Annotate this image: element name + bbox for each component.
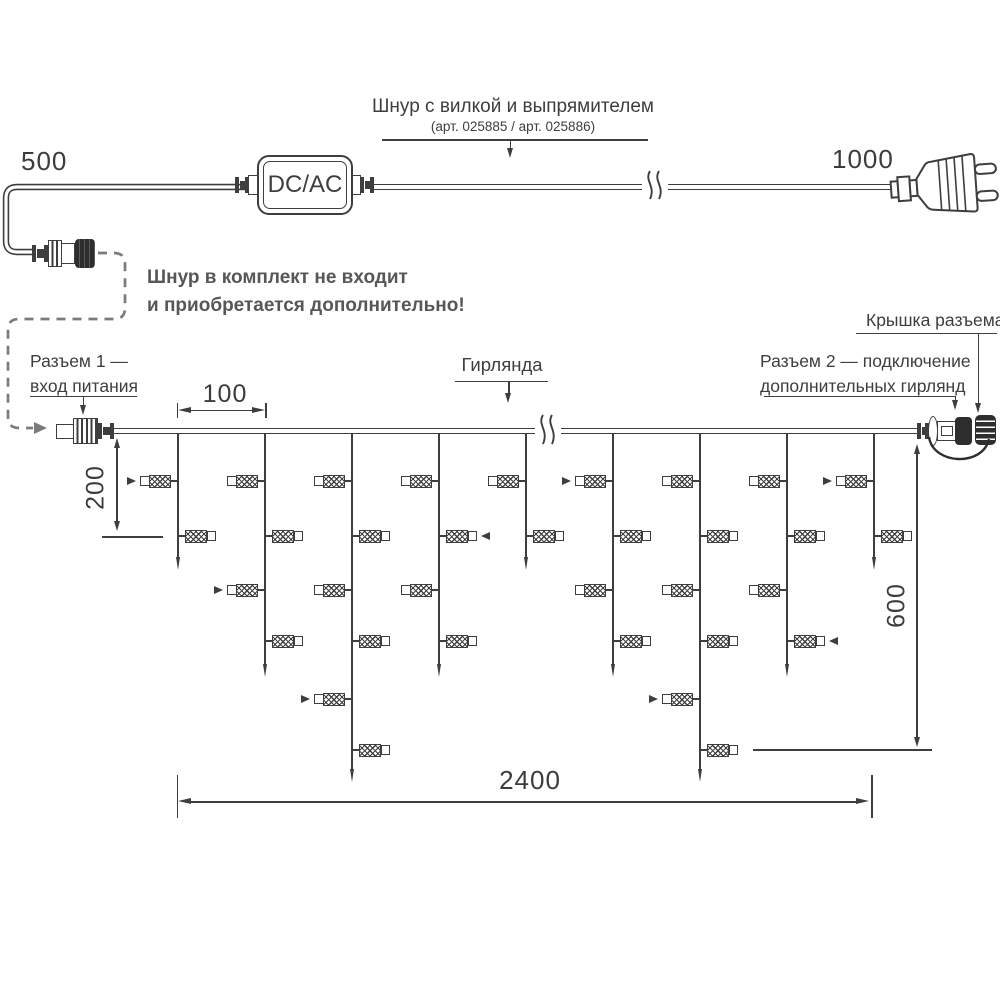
light-stub (432, 589, 439, 591)
led-light-icon (671, 693, 693, 706)
drop-wire (351, 433, 353, 769)
light-pointer-arrow-icon (127, 477, 136, 485)
light-pointer-arrow-icon (562, 477, 571, 485)
light-pointer-arrow-icon (214, 586, 223, 594)
led-light-icon (497, 475, 519, 488)
led-light-icon (149, 475, 171, 488)
light-stub (352, 749, 359, 751)
led-light-cap (401, 476, 411, 486)
light-stub (700, 640, 707, 642)
light-pointer-arrow-icon (823, 477, 832, 485)
led-light-cap (488, 476, 498, 486)
drop-tip-icon (872, 557, 876, 570)
light-stub (780, 589, 787, 591)
led-light-icon (707, 635, 729, 648)
garland-drops-layer (0, 0, 1000, 1000)
drop-wire (873, 433, 875, 557)
light-stub (345, 589, 352, 591)
led-light-icon (323, 693, 345, 706)
light-stub (613, 535, 620, 537)
drop-tip-icon (611, 664, 615, 677)
led-light-cap (729, 745, 739, 755)
led-light-cap (749, 476, 759, 486)
light-stub (606, 480, 613, 482)
light-pointer-arrow-icon (829, 637, 838, 645)
led-light-cap (294, 531, 304, 541)
led-light-icon (845, 475, 867, 488)
drop-tip-icon (176, 557, 180, 570)
led-light-icon (185, 530, 207, 543)
light-stub (352, 535, 359, 537)
led-light-cap (555, 531, 565, 541)
led-light-cap (314, 585, 324, 595)
light-pointer-arrow-icon (649, 695, 658, 703)
drop-tip-icon (263, 664, 267, 677)
drop-tip-icon (785, 664, 789, 677)
light-pointer-arrow-icon (481, 532, 490, 540)
light-stub (700, 749, 707, 751)
light-stub (432, 480, 439, 482)
led-light-icon (446, 530, 468, 543)
led-light-cap (140, 476, 150, 486)
light-stub (265, 640, 272, 642)
light-stub (439, 535, 446, 537)
led-light-icon (272, 530, 294, 543)
led-light-cap (314, 694, 324, 704)
light-stub (345, 698, 352, 700)
led-light-cap (749, 585, 759, 595)
led-light-cap (381, 636, 391, 646)
led-light-icon (584, 584, 606, 597)
led-light-icon (671, 475, 693, 488)
led-light-cap (816, 636, 826, 646)
light-stub (171, 480, 178, 482)
led-light-cap (662, 476, 672, 486)
led-light-icon (758, 584, 780, 597)
led-light-cap (816, 531, 826, 541)
light-stub (613, 640, 620, 642)
light-stub (700, 535, 707, 537)
led-light-icon (707, 530, 729, 543)
led-light-icon (236, 584, 258, 597)
led-light-icon (671, 584, 693, 597)
led-light-icon (323, 475, 345, 488)
led-light-icon (584, 475, 606, 488)
led-light-cap (575, 585, 585, 595)
light-stub (265, 535, 272, 537)
light-stub (439, 640, 446, 642)
drop-wire (525, 433, 527, 557)
led-light-icon (359, 635, 381, 648)
drop-tip-icon (698, 769, 702, 782)
drop-tip-icon (524, 557, 528, 570)
led-light-cap (207, 531, 217, 541)
light-stub (867, 480, 874, 482)
light-stub (787, 535, 794, 537)
led-light-cap (662, 694, 672, 704)
light-stub (693, 589, 700, 591)
led-light-icon (758, 475, 780, 488)
light-stub (352, 640, 359, 642)
led-light-icon (620, 530, 642, 543)
light-stub (693, 480, 700, 482)
led-light-cap (468, 636, 478, 646)
led-light-cap (903, 531, 913, 541)
led-light-cap (468, 531, 478, 541)
led-light-icon (410, 475, 432, 488)
led-light-icon (707, 744, 729, 757)
light-stub (258, 589, 265, 591)
led-light-icon (323, 584, 345, 597)
drop-wire (786, 433, 788, 664)
light-stub (787, 640, 794, 642)
led-light-cap (401, 585, 411, 595)
led-light-icon (794, 635, 816, 648)
drop-wire (699, 433, 701, 769)
led-light-icon (881, 530, 903, 543)
led-light-cap (227, 585, 237, 595)
light-stub (526, 535, 533, 537)
led-light-cap (381, 745, 391, 755)
led-light-icon (236, 475, 258, 488)
led-light-cap (642, 636, 652, 646)
light-stub (178, 535, 185, 537)
led-light-icon (410, 584, 432, 597)
led-light-cap (662, 585, 672, 595)
led-light-cap (642, 531, 652, 541)
led-light-cap (836, 476, 846, 486)
drop-wire (438, 433, 440, 664)
drop-wire (177, 433, 179, 557)
diagram-canvas: Шнур с вилкой и выпрямителем (арт. 02588… (0, 0, 1000, 1000)
light-stub (874, 535, 881, 537)
drop-tip-icon (437, 664, 441, 677)
led-light-icon (359, 530, 381, 543)
led-light-cap (575, 476, 585, 486)
light-stub (519, 480, 526, 482)
light-stub (258, 480, 265, 482)
led-light-icon (620, 635, 642, 648)
led-light-cap (381, 531, 391, 541)
led-light-icon (533, 530, 555, 543)
led-light-cap (314, 476, 324, 486)
led-light-cap (294, 636, 304, 646)
led-light-icon (359, 744, 381, 757)
led-light-cap (227, 476, 237, 486)
light-stub (693, 698, 700, 700)
led-light-cap (729, 531, 739, 541)
drop-wire (264, 433, 266, 664)
led-light-icon (446, 635, 468, 648)
light-stub (780, 480, 787, 482)
led-light-icon (794, 530, 816, 543)
led-light-icon (272, 635, 294, 648)
light-pointer-arrow-icon (301, 695, 310, 703)
light-stub (606, 589, 613, 591)
drop-wire (612, 433, 614, 664)
drop-tip-icon (350, 769, 354, 782)
led-light-cap (729, 636, 739, 646)
light-stub (345, 480, 352, 482)
